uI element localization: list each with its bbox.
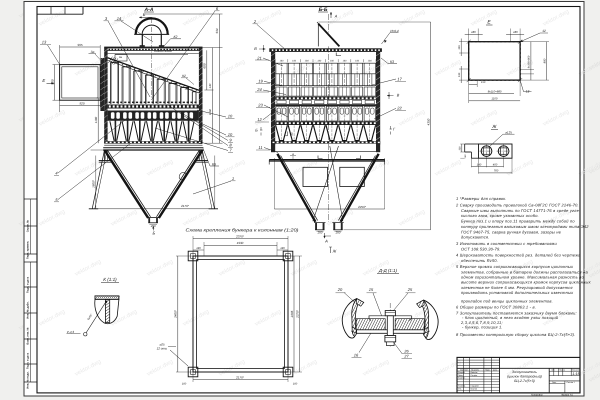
svg-text:Золоуловитель: Золоуловитель bbox=[512, 370, 537, 374]
svg-text:Сварные швы выполнить по ГОСТ: Сварные швы выполнить по ГОСТ 14771-76 в… bbox=[461, 208, 581, 213]
svg-text:И=0,4: И=0,4 bbox=[390, 29, 399, 33]
svg-text:180: 180 bbox=[280, 247, 285, 250]
svg-text:прокладок под венцы циклонных: прокладок под венцы циклонных элементов. bbox=[461, 299, 553, 304]
svg-text:180: 180 bbox=[182, 383, 187, 386]
svg-text:140: 140 bbox=[208, 83, 212, 88]
svg-text:БЦ-2-7х(5+3): БЦ-2-7х(5+3) bbox=[514, 379, 534, 383]
svg-text:К3: К3 bbox=[390, 60, 394, 64]
svg-text:534: 534 bbox=[215, 28, 219, 33]
svg-text:13: 13 bbox=[42, 40, 47, 45]
svg-text:Инв. № дубл.: Инв. № дубл. bbox=[27, 301, 30, 318]
svg-text:6 Общие размеры по ГОСТ 30863.: 6 Общие размеры по ГОСТ 30863.1 - в. bbox=[456, 305, 536, 310]
svg-text:Ж: Ж bbox=[491, 124, 497, 129]
svg-text:130: 130 bbox=[458, 45, 461, 50]
svg-text:2170*: 2170* bbox=[235, 375, 245, 379]
svg-text:2450*: 2450* bbox=[357, 205, 367, 209]
svg-text:180: 180 bbox=[293, 383, 298, 386]
svg-text:10: 10 bbox=[228, 132, 233, 137]
svg-text:180: 180 bbox=[471, 30, 476, 34]
svg-text:1180: 1180 bbox=[94, 116, 98, 123]
svg-text:Р-4,3: Р-4,3 bbox=[67, 330, 75, 334]
svg-text:К1: К1 bbox=[186, 86, 190, 90]
svg-text:Лист: Лист bbox=[552, 381, 556, 384]
svg-text:150: 150 bbox=[481, 81, 486, 84]
svg-text:Козлов: Козлов bbox=[471, 388, 478, 391]
svg-text:1560: 1560 bbox=[208, 108, 212, 115]
svg-text:17: 17 bbox=[397, 76, 402, 81]
svg-text:140: 140 bbox=[477, 163, 482, 166]
svg-text:600: 600 bbox=[203, 63, 207, 68]
svg-text:1:15: 1:15 bbox=[572, 372, 580, 376]
svg-text:2 Сварку производить проволоко: 2 Сварку производить проволокой Св-08Г2С… bbox=[455, 203, 579, 208]
svg-text:Е: Е bbox=[42, 78, 45, 83]
svg-text:6х400=1600: 6х400=1600 bbox=[154, 49, 172, 53]
svg-text:ГОСТ 9467-75, сварка ручная: ГОСТ 9467-75, сварка ручная дуговая, заз… bbox=[461, 229, 562, 234]
svg-text:22: 22 bbox=[396, 106, 402, 111]
svg-text:400: 400 bbox=[493, 163, 498, 166]
svg-text:Подп.: Подп. bbox=[485, 368, 490, 371]
svg-text:Справ. №: Справ. № bbox=[27, 220, 30, 233]
svg-text:Иванов: Иванов bbox=[471, 371, 478, 374]
svg-text:Листов 1: Листов 1 bbox=[567, 381, 576, 384]
svg-text:Лист: Лист bbox=[464, 368, 468, 371]
svg-text:995: 995 bbox=[77, 43, 82, 47]
svg-text:⌀125: ⌀125 bbox=[505, 131, 512, 135]
svg-text:Сидоров: Сидоров bbox=[471, 385, 479, 388]
svg-text:130: 130 bbox=[458, 72, 461, 77]
svg-text:8 Произвести контрольную сборк: 8 Произвести контрольную сборку циклона … bbox=[456, 332, 576, 337]
svg-text:Масса: Масса bbox=[560, 369, 567, 372]
svg-text:19: 19 bbox=[258, 78, 263, 83]
svg-text:1 *Размеры для справок.: 1 *Размеры для справок. bbox=[456, 196, 507, 201]
svg-text:Утв.: Утв. bbox=[458, 388, 462, 391]
svg-text:16: 16 bbox=[354, 353, 359, 358]
svg-text:Лит.: Лит. bbox=[551, 369, 555, 372]
svg-text:К (1:1): К (1:1) bbox=[103, 277, 117, 282]
svg-text:4350: 4350 bbox=[426, 118, 430, 125]
svg-text:За: За bbox=[91, 50, 95, 54]
svg-text:(циклон батарейный): (циклон батарейный) bbox=[507, 374, 542, 378]
svg-text:24: 24 bbox=[256, 87, 262, 92]
svg-text:12: 12 bbox=[257, 117, 262, 122]
svg-text:А: А bbox=[334, 15, 338, 19]
svg-text:1: 1 bbox=[232, 176, 234, 181]
svg-text:23: 23 bbox=[257, 102, 263, 107]
svg-text:А: А bbox=[324, 239, 328, 244]
svg-text:Подп. и дата: Подп. и дата bbox=[27, 276, 30, 293]
svg-text:Т.контр.: Т.контр. bbox=[458, 377, 466, 380]
svg-text:14: 14 bbox=[117, 16, 122, 21]
svg-text:8х100=800: 8х100=800 bbox=[528, 55, 531, 68]
svg-text:1930: 1930 bbox=[237, 241, 244, 245]
svg-text:К2: К2 bbox=[174, 35, 178, 39]
svg-text:12: 12 bbox=[542, 29, 546, 33]
svg-text:2170*: 2170* bbox=[180, 204, 190, 208]
svg-text:2400*: 2400* bbox=[174, 309, 178, 319]
svg-text:2205: 2205 bbox=[290, 310, 294, 318]
svg-text:300: 300 bbox=[459, 146, 462, 151]
svg-text:26: 26 bbox=[403, 350, 409, 354]
svg-text:В: В bbox=[397, 94, 400, 98]
svg-text:Пров.: Пров. bbox=[458, 374, 464, 377]
svg-text:760: 760 bbox=[494, 170, 499, 173]
svg-text:20: 20 bbox=[337, 287, 343, 292]
svg-text:4 Шероховатость поверхностей р: 4 Шероховатость поверхностей рез. детале… bbox=[456, 253, 581, 258]
svg-text:2370*: 2370* bbox=[235, 235, 245, 239]
svg-text:1600*: 1600* bbox=[91, 179, 95, 188]
svg-text:Петров: Петров bbox=[471, 374, 478, 377]
svg-text:Формат А1: Формат А1 bbox=[561, 394, 573, 397]
svg-text:Схема крепления бункера к коло: Схема крепления бункера к колоннам (1:20… bbox=[186, 228, 300, 233]
svg-text:15: 15 bbox=[369, 287, 374, 292]
svg-text:Б: Б bbox=[152, 231, 155, 236]
svg-text:Д-Д (1:1): Д-Д (1:1) bbox=[378, 268, 397, 273]
svg-text:Разраб.: Разраб. bbox=[458, 371, 466, 374]
svg-text:К2: К2 bbox=[182, 74, 186, 78]
svg-text:Взам. инв. №: Взам. инв. № bbox=[27, 327, 30, 344]
svg-text:обеспечить Rz50.: обеспечить Rz50. bbox=[461, 258, 498, 263]
svg-text:контуру прилегания валиковым ш: контуру прилегания валиковым швом электр… bbox=[461, 224, 589, 229]
svg-text:Бункер поз.1 и опору поз.11 п: Бункер поз.1 и опору поз.11 приварить ме… bbox=[461, 219, 575, 224]
svg-text:производить установкой дополни: производить установкой дополнительных из… bbox=[461, 290, 574, 295]
svg-text:25: 25 bbox=[407, 287, 413, 292]
svg-text:Копировал: Копировал bbox=[531, 394, 543, 397]
svg-text:8х110=880: 8х110=880 bbox=[488, 89, 502, 93]
svg-text:ОСТ 108.530.30-79.: ОСТ 108.530.30-79. bbox=[461, 246, 501, 251]
svg-text:880: 880 bbox=[542, 58, 546, 63]
svg-text:Б: Б bbox=[143, 12, 146, 17]
svg-text:27: 27 bbox=[403, 355, 409, 359]
svg-text:11: 11 bbox=[258, 145, 262, 150]
svg-text:2370*: 2370* bbox=[295, 309, 299, 319]
svg-text:920: 920 bbox=[79, 101, 84, 105]
svg-text:Н.контр.: Н.контр. bbox=[458, 385, 466, 388]
svg-text:180: 180 bbox=[196, 247, 201, 250]
svg-text:21: 21 bbox=[256, 55, 261, 60]
svg-text:1100: 1100 bbox=[491, 97, 497, 101]
svg-text:10: 10 bbox=[228, 114, 233, 119]
svg-text:№ докум.: № докум. bbox=[471, 368, 480, 371]
svg-text:допускаются.: допускаются. bbox=[461, 235, 490, 240]
svg-text:Подп. и дата: Подп. и дата bbox=[27, 352, 30, 369]
svg-text:Перв. примен.: Перв. примен. bbox=[27, 241, 30, 260]
svg-text:12 отв.: 12 отв. bbox=[157, 347, 168, 351]
svg-text:Ж: Ж bbox=[332, 249, 337, 254]
svg-text:- бункер, позиция 1.: - бункер, позиция 1. bbox=[462, 325, 503, 330]
svg-text:В: В bbox=[254, 47, 257, 51]
svg-text:180: 180 bbox=[513, 30, 518, 34]
svg-text:800: 800 bbox=[50, 79, 54, 84]
svg-text:кислого газа, кроме указанных: кислого газа, кроме указанных особо. bbox=[461, 213, 539, 218]
svg-text:Инв. № подл.: Инв. № подл. bbox=[27, 371, 30, 388]
